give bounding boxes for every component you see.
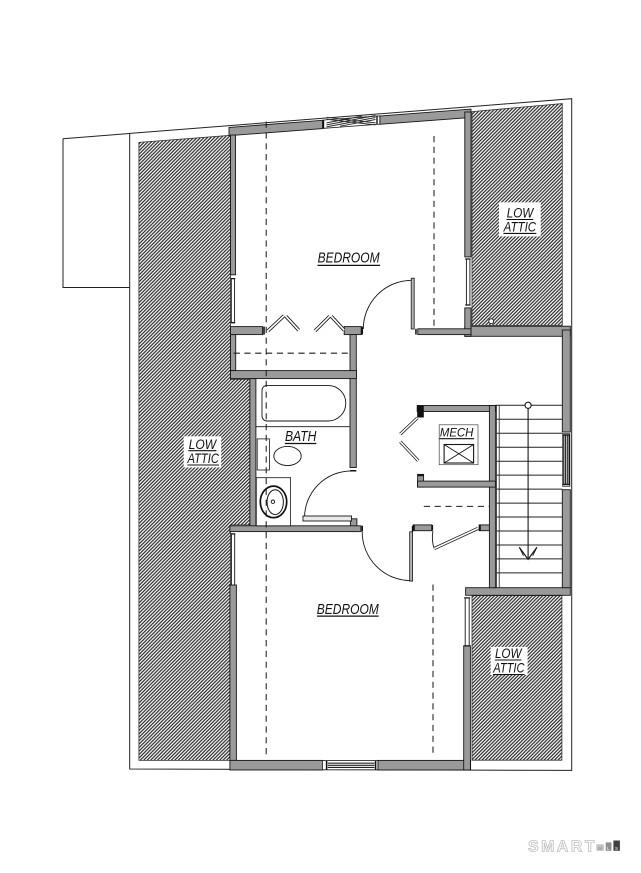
svg-text:BATH: BATH (285, 429, 317, 445)
svg-text:M: M (598, 846, 602, 851)
svg-text:ATTIC: ATTIC (503, 220, 537, 235)
svg-text:S: S (615, 846, 618, 851)
svg-text:BEDROOM: BEDROOM (318, 250, 380, 267)
svg-text:BEDROOM: BEDROOM (317, 601, 379, 618)
svg-text:SMART: SMART (528, 839, 597, 856)
svg-text:LOW: LOW (495, 646, 523, 661)
svg-text:LOW: LOW (507, 206, 535, 221)
svg-text:MECH: MECH (440, 426, 474, 440)
svg-text:ATTIC: ATTIC (187, 451, 220, 466)
svg-text:LOW: LOW (189, 437, 218, 452)
svg-text:ATTIC: ATTIC (492, 661, 525, 676)
